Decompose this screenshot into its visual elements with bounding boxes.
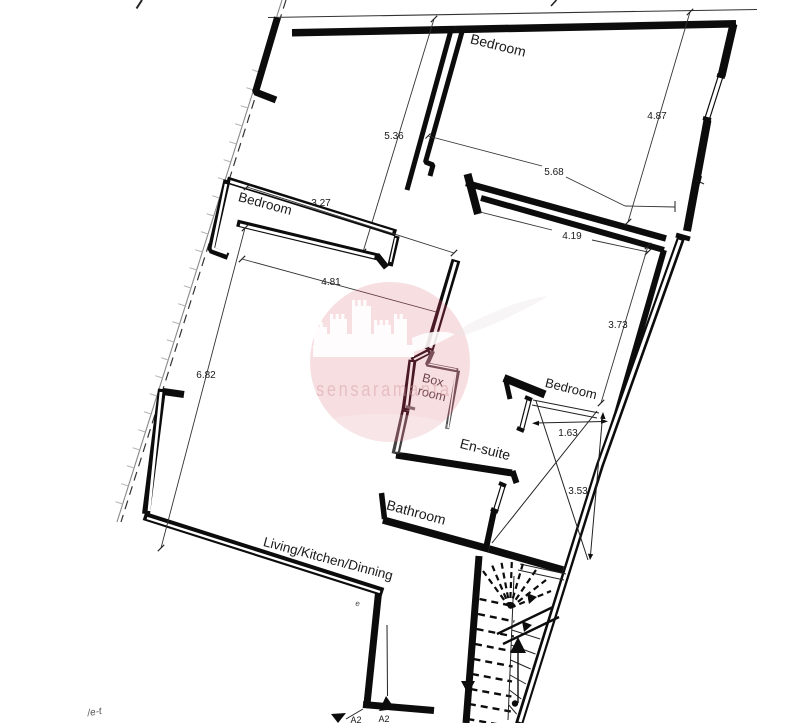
svg-text:sensaramanta: sensaramanta: [316, 377, 452, 400]
svg-text:6.82: 6.82: [196, 370, 216, 381]
svg-text:/e-t: /e-t: [86, 706, 104, 720]
svg-text:A2: A2: [378, 714, 389, 723]
svg-text:4.87: 4.87: [647, 111, 667, 122]
svg-text:3.27: 3.27: [311, 198, 331, 209]
svg-text:3.53: 3.53: [568, 486, 588, 497]
svg-text:4.19: 4.19: [562, 231, 582, 242]
svg-text:5.68: 5.68: [544, 167, 564, 178]
svg-text:A2: A2: [350, 715, 361, 723]
svg-text:Bedroom: Bedroom: [469, 31, 528, 60]
svg-text:3.73: 3.73: [608, 320, 628, 331]
svg-text:En-suite: En-suite: [458, 435, 512, 463]
svg-text:4.81: 4.81: [321, 277, 341, 288]
svg-text:Bedroom: Bedroom: [544, 375, 599, 402]
svg-text:e: e: [354, 599, 361, 609]
svg-text:5.36: 5.36: [384, 131, 404, 142]
svg-text:1.63: 1.63: [558, 428, 578, 439]
